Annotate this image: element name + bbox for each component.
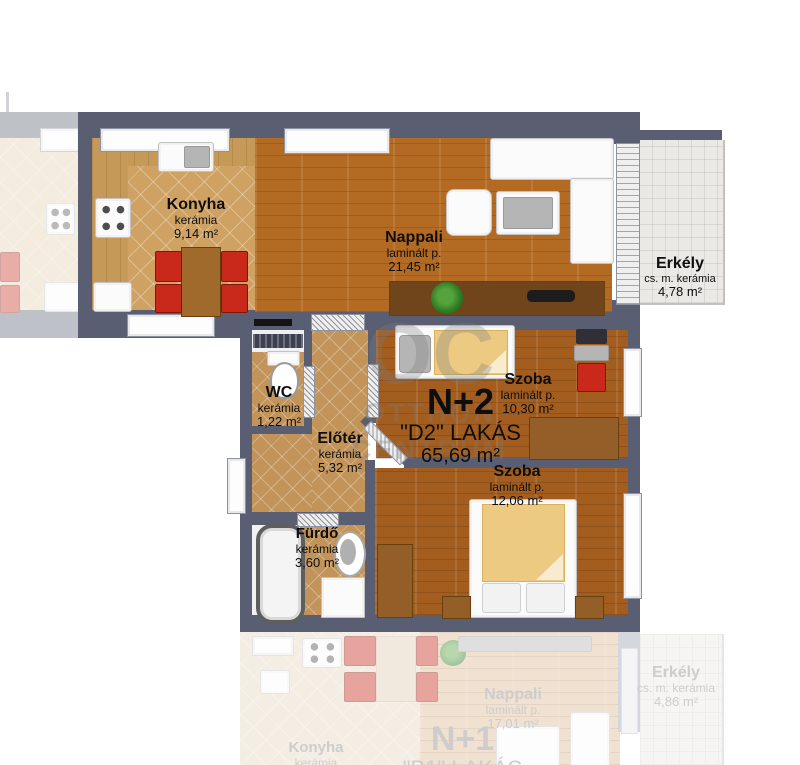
wall-hall-bedroom2 xyxy=(365,460,375,618)
desk-chair xyxy=(577,363,606,392)
room-material: kerámia xyxy=(284,543,350,556)
living-room-window xyxy=(284,128,390,154)
room-name: Nappali xyxy=(368,229,460,247)
dining-table xyxy=(181,247,221,317)
room-area: 4,86 m² xyxy=(620,695,732,709)
kitchen-cabinet xyxy=(93,282,132,312)
dining-chair xyxy=(221,251,248,282)
dining-chair xyxy=(221,284,248,313)
room-area: 21,45 m² xyxy=(368,260,460,274)
room-name: Nappali xyxy=(458,686,568,704)
room-material: laminált p. xyxy=(368,247,460,260)
room-area: 1,22 m² xyxy=(247,415,311,429)
pillow xyxy=(482,583,521,613)
kitchen-south-window xyxy=(127,314,215,337)
room-material: kerámia xyxy=(299,448,381,461)
room-material: kerámia xyxy=(148,214,244,227)
coffee-table-top xyxy=(503,197,553,229)
unit-label: N+2 "D2" LAKÁS 65,69 m² xyxy=(378,384,543,468)
room-area: 3,60 m² xyxy=(284,556,350,570)
pillow xyxy=(526,583,565,613)
doormat xyxy=(254,319,292,326)
room-area: 4,78 m² xyxy=(626,285,734,299)
room-area: 12,06 m² xyxy=(470,494,564,508)
desk xyxy=(574,345,609,361)
room-name: Konyha xyxy=(148,196,244,214)
room-name: Előtér xyxy=(299,430,381,448)
room-material: kerámia xyxy=(247,402,311,415)
room-label-szoba2: Szoba laminált p. 12,06 m² xyxy=(470,463,564,508)
room-material: laminált p. xyxy=(470,481,564,494)
unit-type: N+2 xyxy=(378,384,543,420)
faded-stove xyxy=(302,638,342,668)
room-label-konyha: Konyha kerámia 9,14 m² xyxy=(148,196,244,241)
room-label-reflection-erkely: Erkély cs. m. kerámia 4,86 m² xyxy=(620,664,732,709)
faded-tv-console xyxy=(458,636,592,652)
bedroom2-window xyxy=(623,493,642,599)
shoe-rack xyxy=(253,334,303,348)
balcony-wall xyxy=(638,130,722,140)
washing-machine xyxy=(321,577,365,618)
bedroom1-window xyxy=(623,348,642,417)
room-label-erkely: Erkély cs. m. kerámia 4,78 m² xyxy=(626,255,734,299)
room-name: Erkély xyxy=(620,664,732,682)
room-material: cs. m. kerámia xyxy=(626,273,734,285)
room-label-wc: WC kerámia 1,22 m² xyxy=(247,384,311,429)
desk-shelf xyxy=(576,329,607,344)
kitchen-sink-basin xyxy=(184,146,210,168)
unit-type: N+1 xyxy=(395,722,530,756)
faded-chair xyxy=(344,636,376,666)
nightstand xyxy=(442,596,471,619)
stove xyxy=(95,198,131,238)
faded-sofa xyxy=(570,712,610,765)
sofa-section xyxy=(570,178,614,264)
room-material: laminált p. xyxy=(458,704,568,717)
wall-west-upper xyxy=(78,112,92,338)
tv xyxy=(527,290,575,302)
dining-chair xyxy=(155,284,182,313)
room-name: WC xyxy=(247,384,311,402)
room-area: 5,32 m² xyxy=(299,461,381,475)
sofa-section xyxy=(490,138,614,180)
room-name: Konyha xyxy=(275,740,357,757)
dining-chair xyxy=(155,251,182,282)
unit-name: "D2" LAKÁS xyxy=(378,420,543,445)
faded-table xyxy=(376,636,416,702)
floor-plan-canvas: Nappali laminált p. 17,01 m² Erkély cs. … xyxy=(0,0,800,765)
blanket-fold xyxy=(536,554,563,580)
faded-chair xyxy=(344,672,376,702)
hallway-west-door xyxy=(227,458,246,514)
wardrobe xyxy=(377,544,413,618)
room-name: Fürdő xyxy=(284,526,350,543)
room-label-furdo: Fürdő kerámia 3,60 m² xyxy=(284,526,350,570)
room-material: cs. m. kerámia xyxy=(620,682,732,695)
room-name: Erkély xyxy=(626,255,734,273)
unit-label-reflection: N+1 "B1" LAKÁS xyxy=(395,722,530,765)
faded-window xyxy=(252,636,294,656)
room-label-nappali: Nappali laminált p. 21,45 m² xyxy=(368,229,460,274)
unit-area: 65,69 m² xyxy=(378,445,543,468)
room-label-reflection-konyha: Konyha kerámia xyxy=(275,740,357,765)
unit-name: "B1" LAKÁS xyxy=(395,756,530,765)
faded-chair xyxy=(416,672,438,702)
room-material: kerámia xyxy=(275,757,357,765)
faded-fridge xyxy=(260,670,290,694)
faded-chair xyxy=(416,636,438,666)
nightstand xyxy=(575,596,604,619)
room-area: 9,14 m² xyxy=(148,227,244,241)
room-label-eloter: Előtér kerámia 5,32 m² xyxy=(299,430,381,475)
